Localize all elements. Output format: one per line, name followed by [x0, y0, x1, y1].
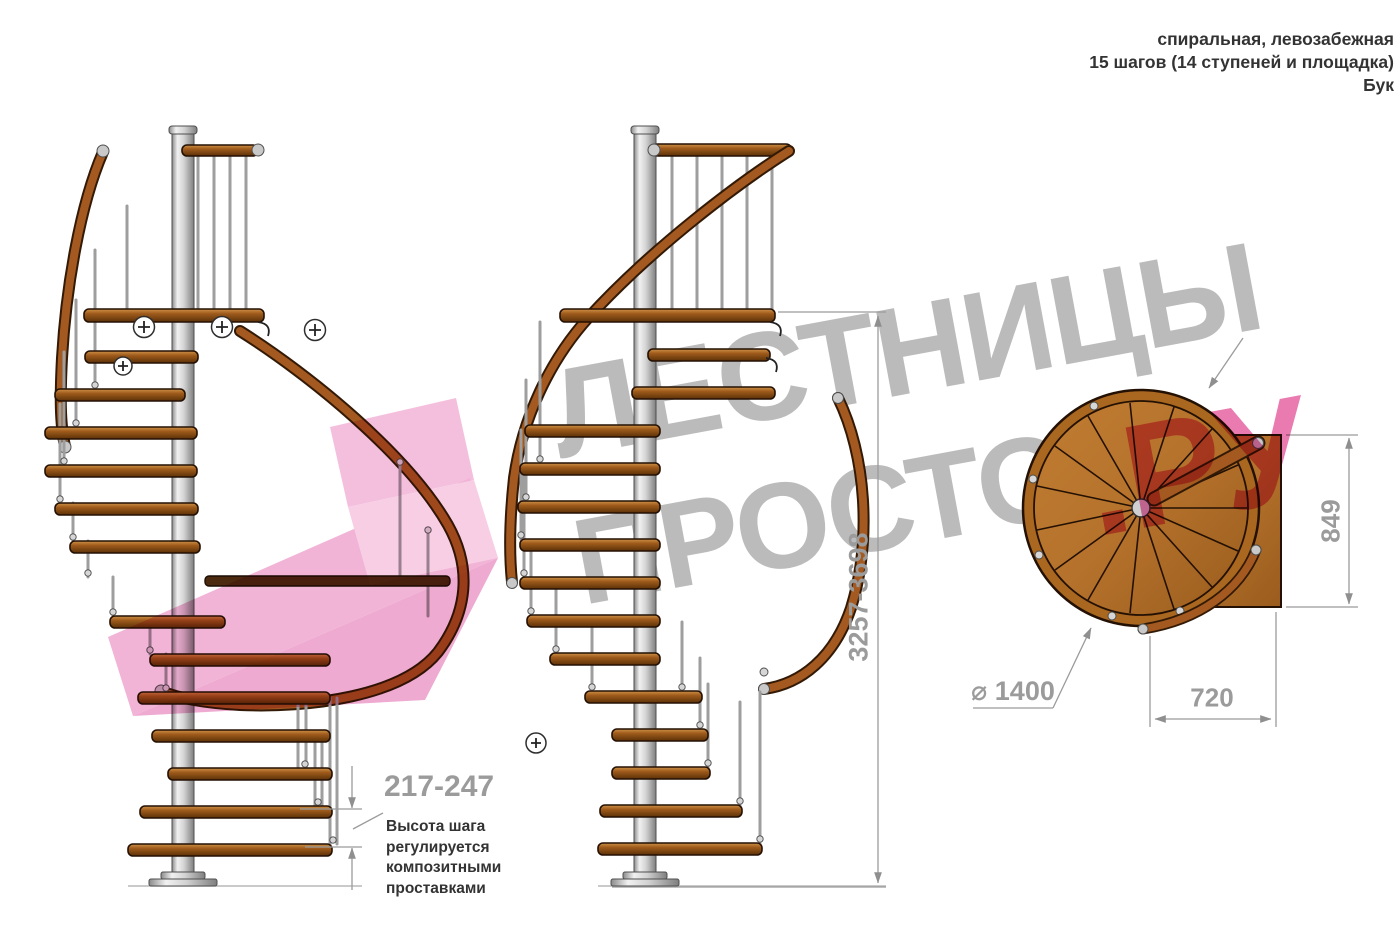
title-block: спиральная, левозабежная 15 шагов (14 ст… — [1089, 28, 1394, 97]
center-elevation-view — [507, 126, 887, 886]
title-material: Бук — [1089, 74, 1394, 97]
diameter-value: 1400 — [995, 676, 1055, 706]
plan-diameter-dimension: ⌀ 1400 — [971, 676, 1055, 707]
title-steps: 15 шагов (14 ступеней и площадка) — [1089, 51, 1394, 74]
diameter-icon: ⌀ — [971, 676, 987, 706]
step-height-note: Высота шага регулируется композитными пр… — [386, 817, 501, 899]
total-height-dimension: 3257-3698 — [844, 532, 875, 661]
step-height-dimension: 217-247 — [384, 770, 494, 804]
spiral-staircase-drawing-page: { "header": { "line1": "спиральная, лево… — [0, 0, 1400, 949]
plan-depth-dimension: 849 — [1316, 499, 1347, 542]
plan-width-dimension: 720 — [1190, 683, 1233, 714]
title-type: спиральная, левозабежная — [1089, 28, 1394, 51]
